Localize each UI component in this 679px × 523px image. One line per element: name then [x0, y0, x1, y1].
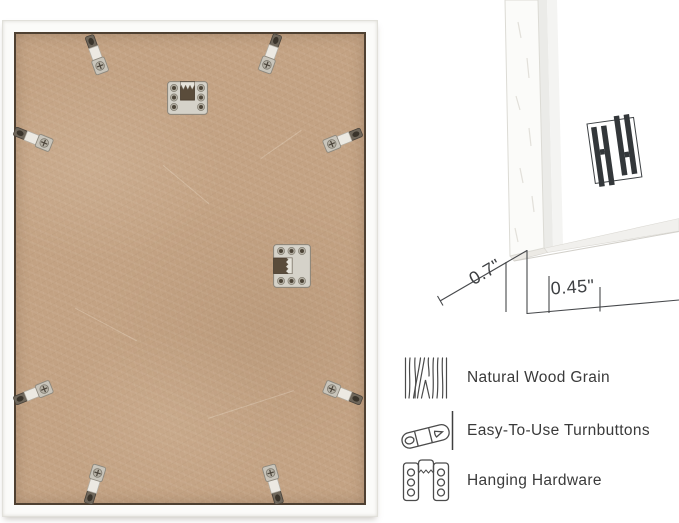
depth-dimension-label: 0.7"	[466, 255, 505, 289]
board-scratch	[208, 390, 294, 419]
wood-grain-icon	[403, 356, 449, 400]
board-scratch	[75, 308, 137, 342]
face-width-dimension-label: 0.45"	[550, 276, 595, 299]
hanging-hardware-icon	[401, 457, 451, 503]
feature-label-turnbuttons: Easy-To-Use Turnbuttons	[467, 422, 650, 440]
feature-label-hanging-hardware: Hanging Hardware	[467, 472, 602, 490]
board-scratch	[260, 130, 302, 159]
board-scratch	[163, 165, 210, 204]
sawtooth-hanger-top	[167, 81, 208, 115]
product-infographic: 0.7" 0.45" Natural Wood Grain Easy-	[0, 0, 679, 523]
feature-label-wood-grain: Natural Wood Grain	[467, 369, 610, 387]
frame-moulding	[505, 0, 544, 256]
frame-corner-detail: 0.7" 0.45"	[430, 0, 679, 320]
sawtooth-hanger-side	[273, 244, 311, 288]
frame-back-photo	[2, 20, 378, 517]
turnbutton-icon	[400, 410, 458, 454]
